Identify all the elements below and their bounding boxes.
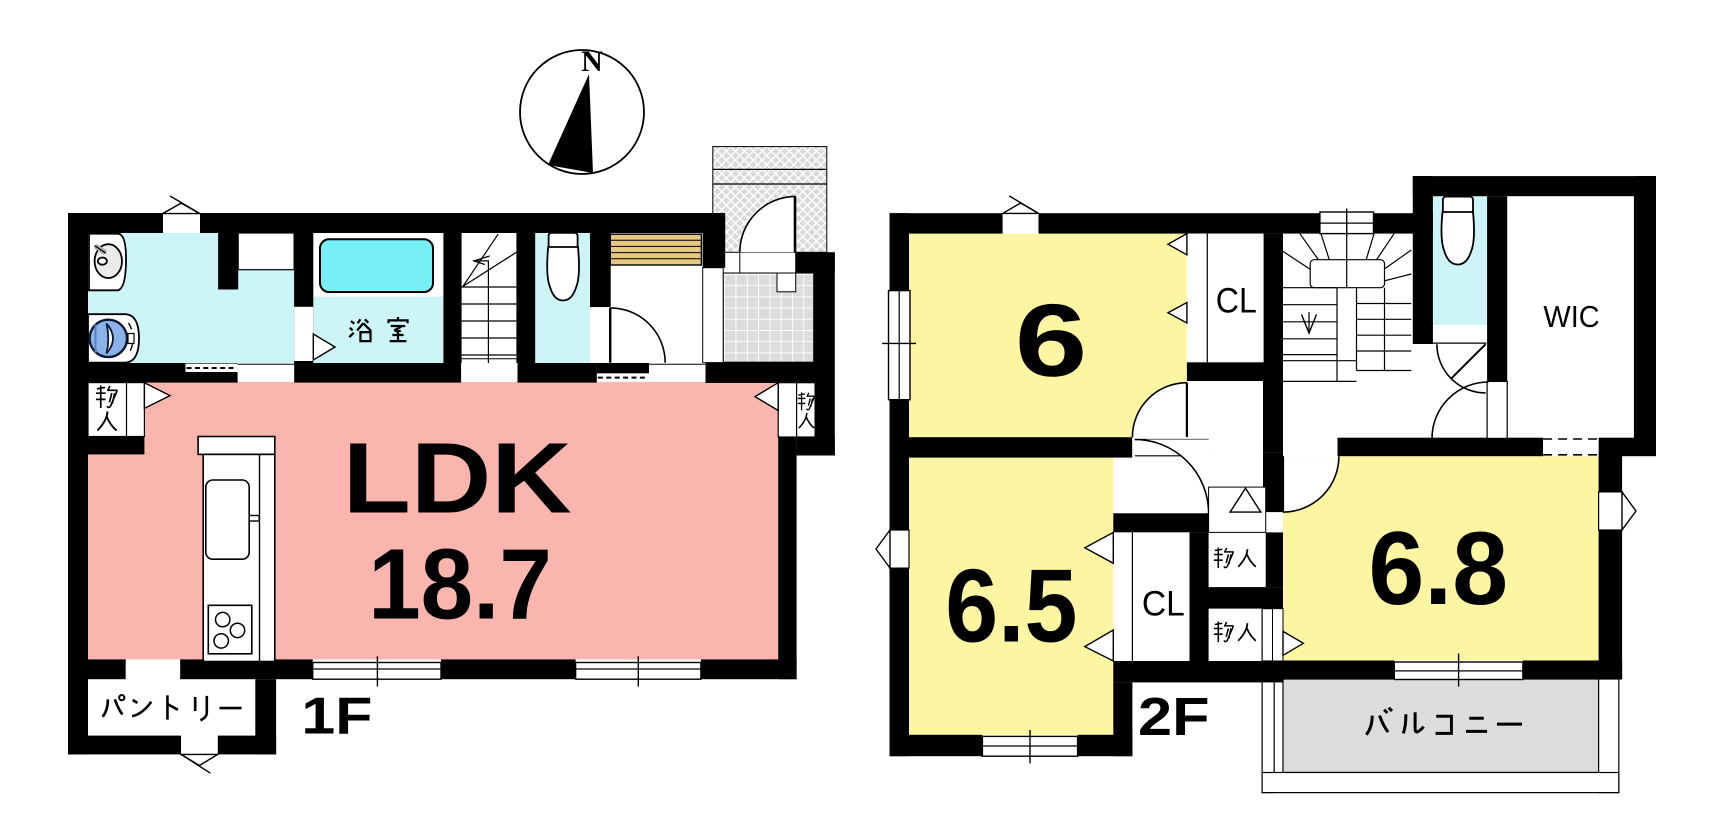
svg-text:6.5: 6.5 bbox=[945, 548, 1077, 664]
svg-text:N: N bbox=[581, 45, 603, 78]
svg-text:18.7: 18.7 bbox=[368, 528, 552, 640]
svg-text:6.8: 6.8 bbox=[1369, 511, 1509, 627]
svg-text:6: 6 bbox=[1015, 283, 1088, 398]
svg-text:WIC: WIC bbox=[1543, 299, 1599, 334]
svg-text:LDK: LDK bbox=[343, 422, 572, 534]
svg-text:CL: CL bbox=[1142, 585, 1185, 624]
svg-text:CL: CL bbox=[1216, 282, 1257, 321]
svg-text:2F: 2F bbox=[1138, 687, 1210, 747]
svg-text:1F: 1F bbox=[301, 688, 372, 746]
